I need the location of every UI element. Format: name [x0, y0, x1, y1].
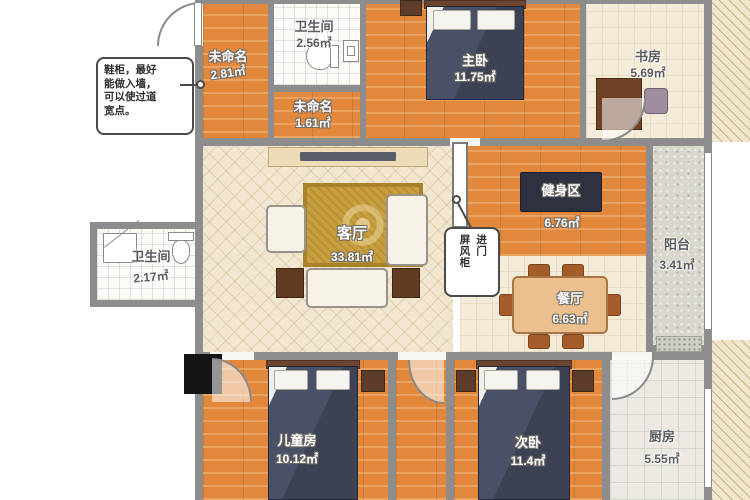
master-pillow-left — [433, 10, 471, 30]
room-label-study: 书房 — [620, 46, 676, 65]
entry-screen-note: 屏风柜 进门 — [444, 227, 500, 297]
wall-kids-hall — [388, 360, 396, 500]
room-label-kitchen: 厨房 — [626, 426, 698, 445]
window-balcony — [704, 152, 712, 330]
second-nightstand-right — [572, 370, 594, 392]
kids-nightstand — [361, 370, 385, 392]
second-pillow-right — [526, 370, 560, 390]
kids-pillow-left — [274, 370, 308, 390]
wall-bathleft-left — [90, 222, 97, 307]
room-label-living: 客厅 — [320, 222, 384, 243]
room-area-master: 11.75㎡ — [438, 68, 512, 85]
note-line: 鞋柜，最好 — [104, 64, 186, 78]
door-leaf-entry — [194, 2, 202, 46]
side-table-right — [392, 268, 420, 298]
side-table-left — [276, 268, 304, 298]
room-label-balcony: 阳台 — [652, 234, 702, 253]
dining-chair — [562, 334, 584, 349]
room-area-kids: 10.12㎡ — [260, 450, 334, 467]
room-area-gym: 6.76㎡ — [534, 214, 590, 231]
kids-pillow-right — [316, 370, 350, 390]
chaise-sofa — [386, 194, 428, 266]
armchair — [266, 205, 306, 253]
leader-dot-shoe-note — [196, 80, 205, 89]
three-seat-sofa — [306, 268, 388, 308]
dining-chair — [606, 294, 621, 316]
wall-hall-master — [360, 0, 366, 146]
room-label-kids: 儿童房 — [262, 430, 332, 449]
room-area-dining: 6.63㎡ — [542, 310, 598, 327]
wall-hall-second — [446, 360, 454, 500]
hatch-bottom-right — [712, 340, 750, 500]
dining-chair — [528, 334, 550, 349]
room-area-bath-top: 2.56㎡ — [280, 34, 348, 51]
floor-plan: 未命名 2.81㎡ 卫生间 2.56㎡ 未命名 1.61㎡ 主卧 11.75㎡ … — [0, 0, 750, 500]
room-area-balcony: 3.41㎡ — [648, 256, 706, 273]
room-area-kitchen: 5.55㎡ — [624, 450, 700, 467]
window-kitchen — [704, 388, 712, 488]
wall-foyer-bath — [268, 0, 274, 146]
tv — [300, 152, 396, 161]
second-pillow-left — [484, 370, 518, 390]
room-area-study: 5.69㎡ — [614, 64, 682, 81]
room-label-master: 主卧 — [445, 50, 505, 69]
room-label-bath-left: 卫生间 — [116, 246, 186, 265]
room-label-hall: 未命名 — [275, 96, 351, 115]
wall-bathleft-bottom — [90, 300, 200, 307]
master-nightstand — [400, 0, 422, 16]
room-area-second: 11.4㎡ — [494, 452, 562, 469]
wall-bath-top-bottom — [272, 85, 360, 92]
room-area-hall: 1.61㎡ — [279, 114, 347, 131]
door-gap-hall — [398, 352, 446, 360]
wall-bathleft-top — [90, 222, 200, 229]
room-label-second: 次卧 — [500, 432, 556, 451]
note-column-left: 屏风柜 — [457, 234, 471, 290]
shoe-cabinet-note: 鞋柜，最好 能做入墙， 可以使过道 宽点。 — [96, 57, 194, 135]
room-label-dining: 餐厅 — [548, 288, 592, 307]
second-nightstand-left — [456, 370, 476, 392]
hatch-top-right — [712, 0, 750, 142]
note-line: 能做入墙， — [104, 78, 186, 92]
master-pillow-right — [477, 10, 515, 30]
washer-door-icon — [347, 46, 355, 56]
note-line: 宽点。 — [104, 105, 186, 119]
wall-second-kitchen — [602, 360, 610, 500]
note-column-right: 进门 — [474, 234, 488, 290]
room-label-bath-top: 卫生间 — [276, 16, 352, 35]
kitchen-counter — [656, 336, 702, 352]
wall-master-study — [580, 0, 586, 146]
room-label-gym: 健身区 — [524, 180, 598, 199]
wall-left — [195, 46, 203, 500]
room-area-living: 33.81㎡ — [312, 248, 392, 265]
study-chair — [644, 88, 668, 114]
leader-dot-screen-note — [452, 195, 461, 204]
note-line: 可以使过道 — [104, 91, 186, 105]
